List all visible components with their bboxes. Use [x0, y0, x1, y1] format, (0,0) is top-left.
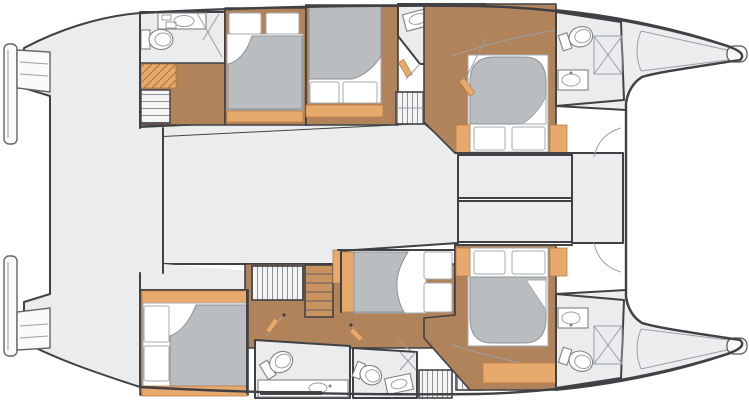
pillow	[512, 127, 545, 150]
pillow	[343, 82, 377, 103]
upper-forward-bathroom	[556, 12, 624, 106]
side-deck-lower	[140, 264, 250, 290]
pillow	[144, 346, 169, 381]
upper-forward-cabin	[424, 4, 567, 153]
lower-companionway-steps	[305, 265, 333, 317]
bed-duvet	[309, 6, 381, 79]
bed-platform	[227, 111, 303, 122]
lower-aft-bathroom	[255, 340, 350, 398]
transom-steps-upper	[17, 50, 50, 92]
pillow	[474, 251, 505, 274]
forward-locker	[572, 153, 623, 243]
bed-platform	[142, 291, 247, 303]
pillow	[266, 13, 299, 34]
bed-frame	[550, 248, 567, 276]
catamaran-floor-plan	[0, 0, 749, 400]
bed-headboard	[341, 252, 354, 312]
upper-companionway-landing	[140, 63, 225, 125]
stairs	[141, 64, 176, 88]
lower-aft-cabin	[140, 290, 248, 396]
door-strip	[333, 250, 341, 283]
bed-frame	[456, 125, 470, 153]
bed-platform	[483, 363, 567, 383]
swim-platform-upper	[4, 44, 17, 144]
pillow	[310, 82, 339, 103]
drawer-unit	[141, 90, 170, 123]
pillow	[229, 13, 261, 34]
toilet	[141, 30, 173, 50]
pillow	[424, 283, 452, 312]
swim-platform-lower	[4, 256, 17, 356]
transom-steps-lower	[17, 308, 50, 350]
lower-forward-bathroom	[556, 294, 624, 388]
pillow	[512, 251, 545, 274]
pillow	[424, 252, 452, 279]
upper-aft-cabin	[225, 5, 310, 125]
forward-cell-a	[458, 155, 572, 198]
wardrobe	[252, 266, 303, 300]
floor-plan-page	[0, 0, 749, 400]
bed-frame	[550, 125, 567, 153]
saloon	[163, 123, 458, 264]
pillow	[144, 306, 169, 342]
bed-platform	[306, 105, 383, 117]
bed-frame	[456, 248, 470, 276]
forward-cell-b	[458, 201, 572, 242]
lower-mid-bathroom	[351, 348, 417, 398]
door-swing-arc-lower	[594, 243, 621, 272]
pillow	[474, 127, 505, 150]
